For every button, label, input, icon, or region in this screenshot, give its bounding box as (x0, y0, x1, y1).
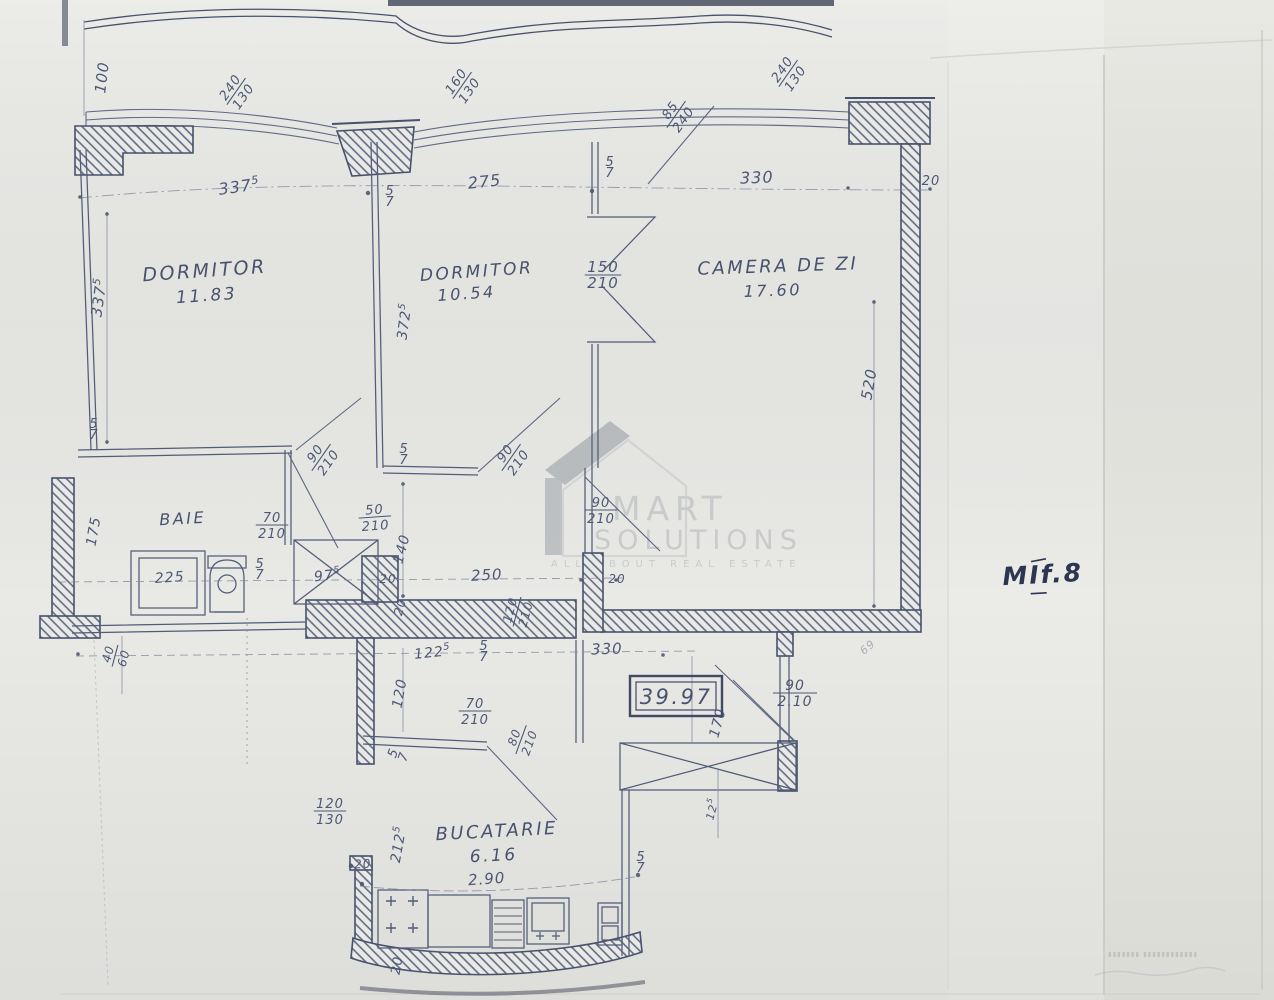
house-logo-wall (545, 478, 562, 555)
dim-label: 225 (154, 569, 185, 587)
wall-right (901, 144, 920, 612)
room-area-kitchen: 6.16 (469, 845, 518, 867)
svg-text:7: 7 (605, 166, 614, 181)
room-area-bedroom1: 11.83 (175, 284, 237, 308)
watermark-line1: MART (612, 489, 728, 528)
dim-label: 20 (922, 174, 941, 189)
svg-text:20: 20 (379, 572, 396, 586)
dim-label: 20 (608, 572, 625, 586)
stamp-text: ▮▮▮▮▮▮▮ ▮▮▮▮▮▮▮▮▮▮▮▮ (1108, 950, 1198, 958)
svg-text:7: 7 (385, 195, 394, 210)
svg-text:250: 250 (470, 565, 503, 585)
svg-text:70: 70 (466, 697, 485, 712)
svg-text:2.90: 2.90 (467, 869, 506, 890)
room-area-bedroom2: 10.54 (437, 282, 496, 305)
svg-text:7: 7 (89, 428, 98, 443)
dim-label: 57 (605, 155, 614, 181)
dim-label: 57 (479, 639, 488, 665)
wall-bath-outer (52, 478, 74, 630)
svg-text:120: 120 (316, 797, 344, 812)
svg-text:330: 330 (740, 167, 774, 187)
svg-text:7: 7 (399, 453, 408, 468)
svg-text:2.10: 2.10 (777, 694, 812, 710)
svg-text:7: 7 (255, 568, 264, 583)
svg-text:210: 210 (587, 274, 619, 292)
svg-text:20: 20 (354, 857, 372, 872)
dim-label: 120130 (314, 797, 347, 828)
total-area-box: 39.97 (630, 676, 722, 716)
dim-label: 330 (740, 167, 774, 187)
dim-label: 57 (636, 850, 645, 876)
watermark-line2: SOLUTIONS (594, 525, 803, 556)
wall-kitchen-left-upper (357, 638, 374, 764)
svg-text:20: 20 (922, 174, 941, 189)
room-area-living: 17.60 (743, 280, 802, 301)
dim-label: 57 (399, 442, 408, 468)
dim-label: 57 (385, 184, 394, 210)
svg-text:330: 330 (591, 639, 623, 658)
dim-label: 150210 (585, 258, 622, 292)
svg-text:275: 275 (467, 170, 502, 192)
svg-text:210: 210 (587, 512, 615, 527)
wall-stub (777, 632, 793, 656)
svg-text:7: 7 (479, 650, 488, 665)
dim-label: 250 (470, 565, 503, 585)
svg-text:20: 20 (608, 572, 625, 586)
dim-label: 20 (354, 857, 372, 872)
floor-plan-drawing: MART SOLUTIONS ALL ABOUT REAL ESTATE (0, 0, 1274, 1000)
dim-label: 2.90 (467, 869, 506, 890)
svg-text:210: 210 (258, 527, 286, 542)
svg-text:70: 70 (263, 511, 282, 526)
svg-text:90: 90 (592, 496, 611, 511)
svg-text:90: 90 (785, 678, 805, 694)
dim-label: 57 (255, 557, 264, 583)
wall-bath-outer-bottom (40, 616, 100, 638)
dim-label: 57 (89, 417, 98, 443)
dim-label: 20 (379, 572, 396, 586)
svg-text:210: 210 (461, 713, 489, 728)
dim-label: 330 (591, 639, 623, 658)
total-area-value: 39.97 (640, 685, 713, 709)
wall-living-pillar (583, 553, 603, 632)
wall-central-bar (306, 600, 576, 638)
unit-note-text: MIf.8 (1002, 558, 1084, 591)
svg-text:100: 100 (91, 61, 113, 95)
dim-label: 100 (91, 61, 113, 95)
svg-text:7: 7 (636, 861, 645, 876)
scanned-floor-plan-page: MART SOLUTIONS ALL ABOUT REAL ESTATE (0, 0, 1274, 1000)
dim-label: 275 (467, 170, 502, 192)
svg-text:225: 225 (154, 569, 185, 587)
room-name-bath: BAIE (159, 508, 207, 529)
wall-top-right-pillar (849, 102, 930, 144)
dim-label: 20 (389, 955, 407, 976)
svg-text:210: 210 (361, 518, 390, 535)
page-top-edge (388, 0, 834, 6)
svg-text:20: 20 (389, 955, 407, 976)
wall-closet-end (778, 741, 797, 791)
wall-living-bottom (601, 610, 921, 632)
svg-text:130: 130 (316, 813, 344, 828)
